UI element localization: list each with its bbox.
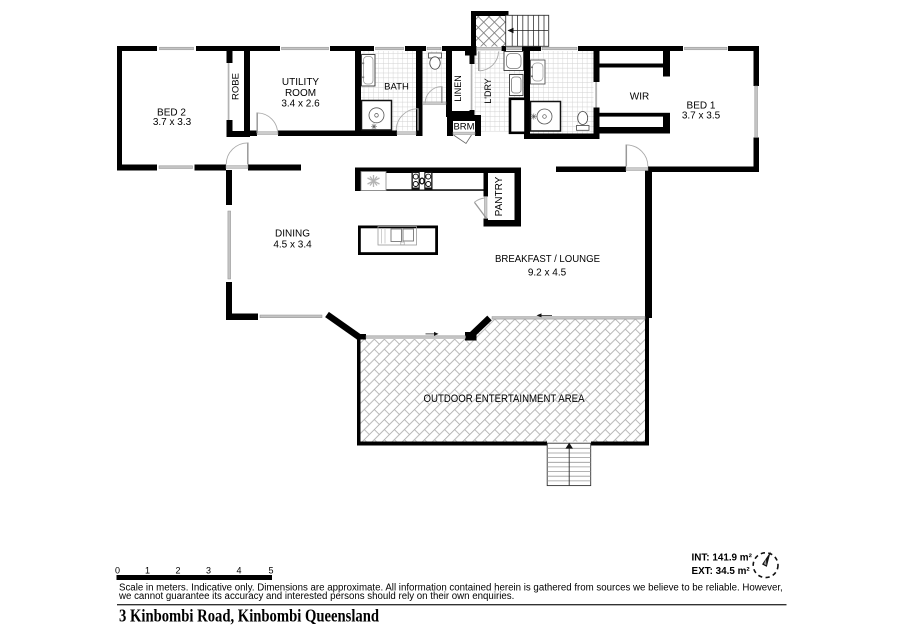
svg-text:UTILITY: UTILITY [282, 77, 320, 88]
svg-text:1: 1 [145, 566, 150, 576]
svg-text:ROOM: ROOM [285, 88, 316, 99]
svg-text:ROBE: ROBE [231, 73, 242, 100]
svg-text:INT: 141.9 m²: INT: 141.9 m² [692, 552, 753, 563]
svg-text:9.2 x 4.5: 9.2 x 4.5 [528, 267, 567, 278]
svg-text:LINEN: LINEN [453, 75, 463, 102]
svg-text:WIR: WIR [630, 92, 649, 103]
svg-text:PANTRY: PANTRY [494, 176, 505, 216]
svg-text:BREAKFAST / LOUNGE: BREAKFAST / LOUNGE [495, 254, 600, 265]
svg-text:5: 5 [268, 566, 273, 576]
svg-text:3.7 x 3.5: 3.7 x 3.5 [682, 111, 721, 122]
svg-text:3.7 x 3.3: 3.7 x 3.3 [153, 117, 192, 128]
svg-text:3.4 x 2.6: 3.4 x 2.6 [281, 99, 320, 110]
svg-text:3 Kinbombi Road, Kinbombi Quee: 3 Kinbombi Road, Kinbombi Queensland [119, 606, 379, 626]
svg-text:BRM: BRM [453, 121, 474, 132]
svg-text:EXT: 34.5 m²: EXT: 34.5 m² [692, 566, 751, 577]
svg-text:0: 0 [115, 566, 120, 576]
svg-text:we cannot guarantee its accura: we cannot guarantee its accuracy and int… [118, 591, 514, 602]
svg-text:3: 3 [206, 566, 211, 576]
svg-text:2: 2 [175, 566, 180, 576]
svg-text:BATH: BATH [384, 82, 409, 93]
svg-text:DINING: DINING [275, 228, 310, 239]
svg-text:L'DRY: L'DRY [483, 78, 493, 104]
svg-text:4.5 x 3.4: 4.5 x 3.4 [273, 239, 312, 250]
svg-text:4: 4 [236, 566, 241, 576]
svg-text:OUTDOOR ENTERTAINMENT AREA: OUTDOOR ENTERTAINMENT AREA [424, 393, 586, 405]
